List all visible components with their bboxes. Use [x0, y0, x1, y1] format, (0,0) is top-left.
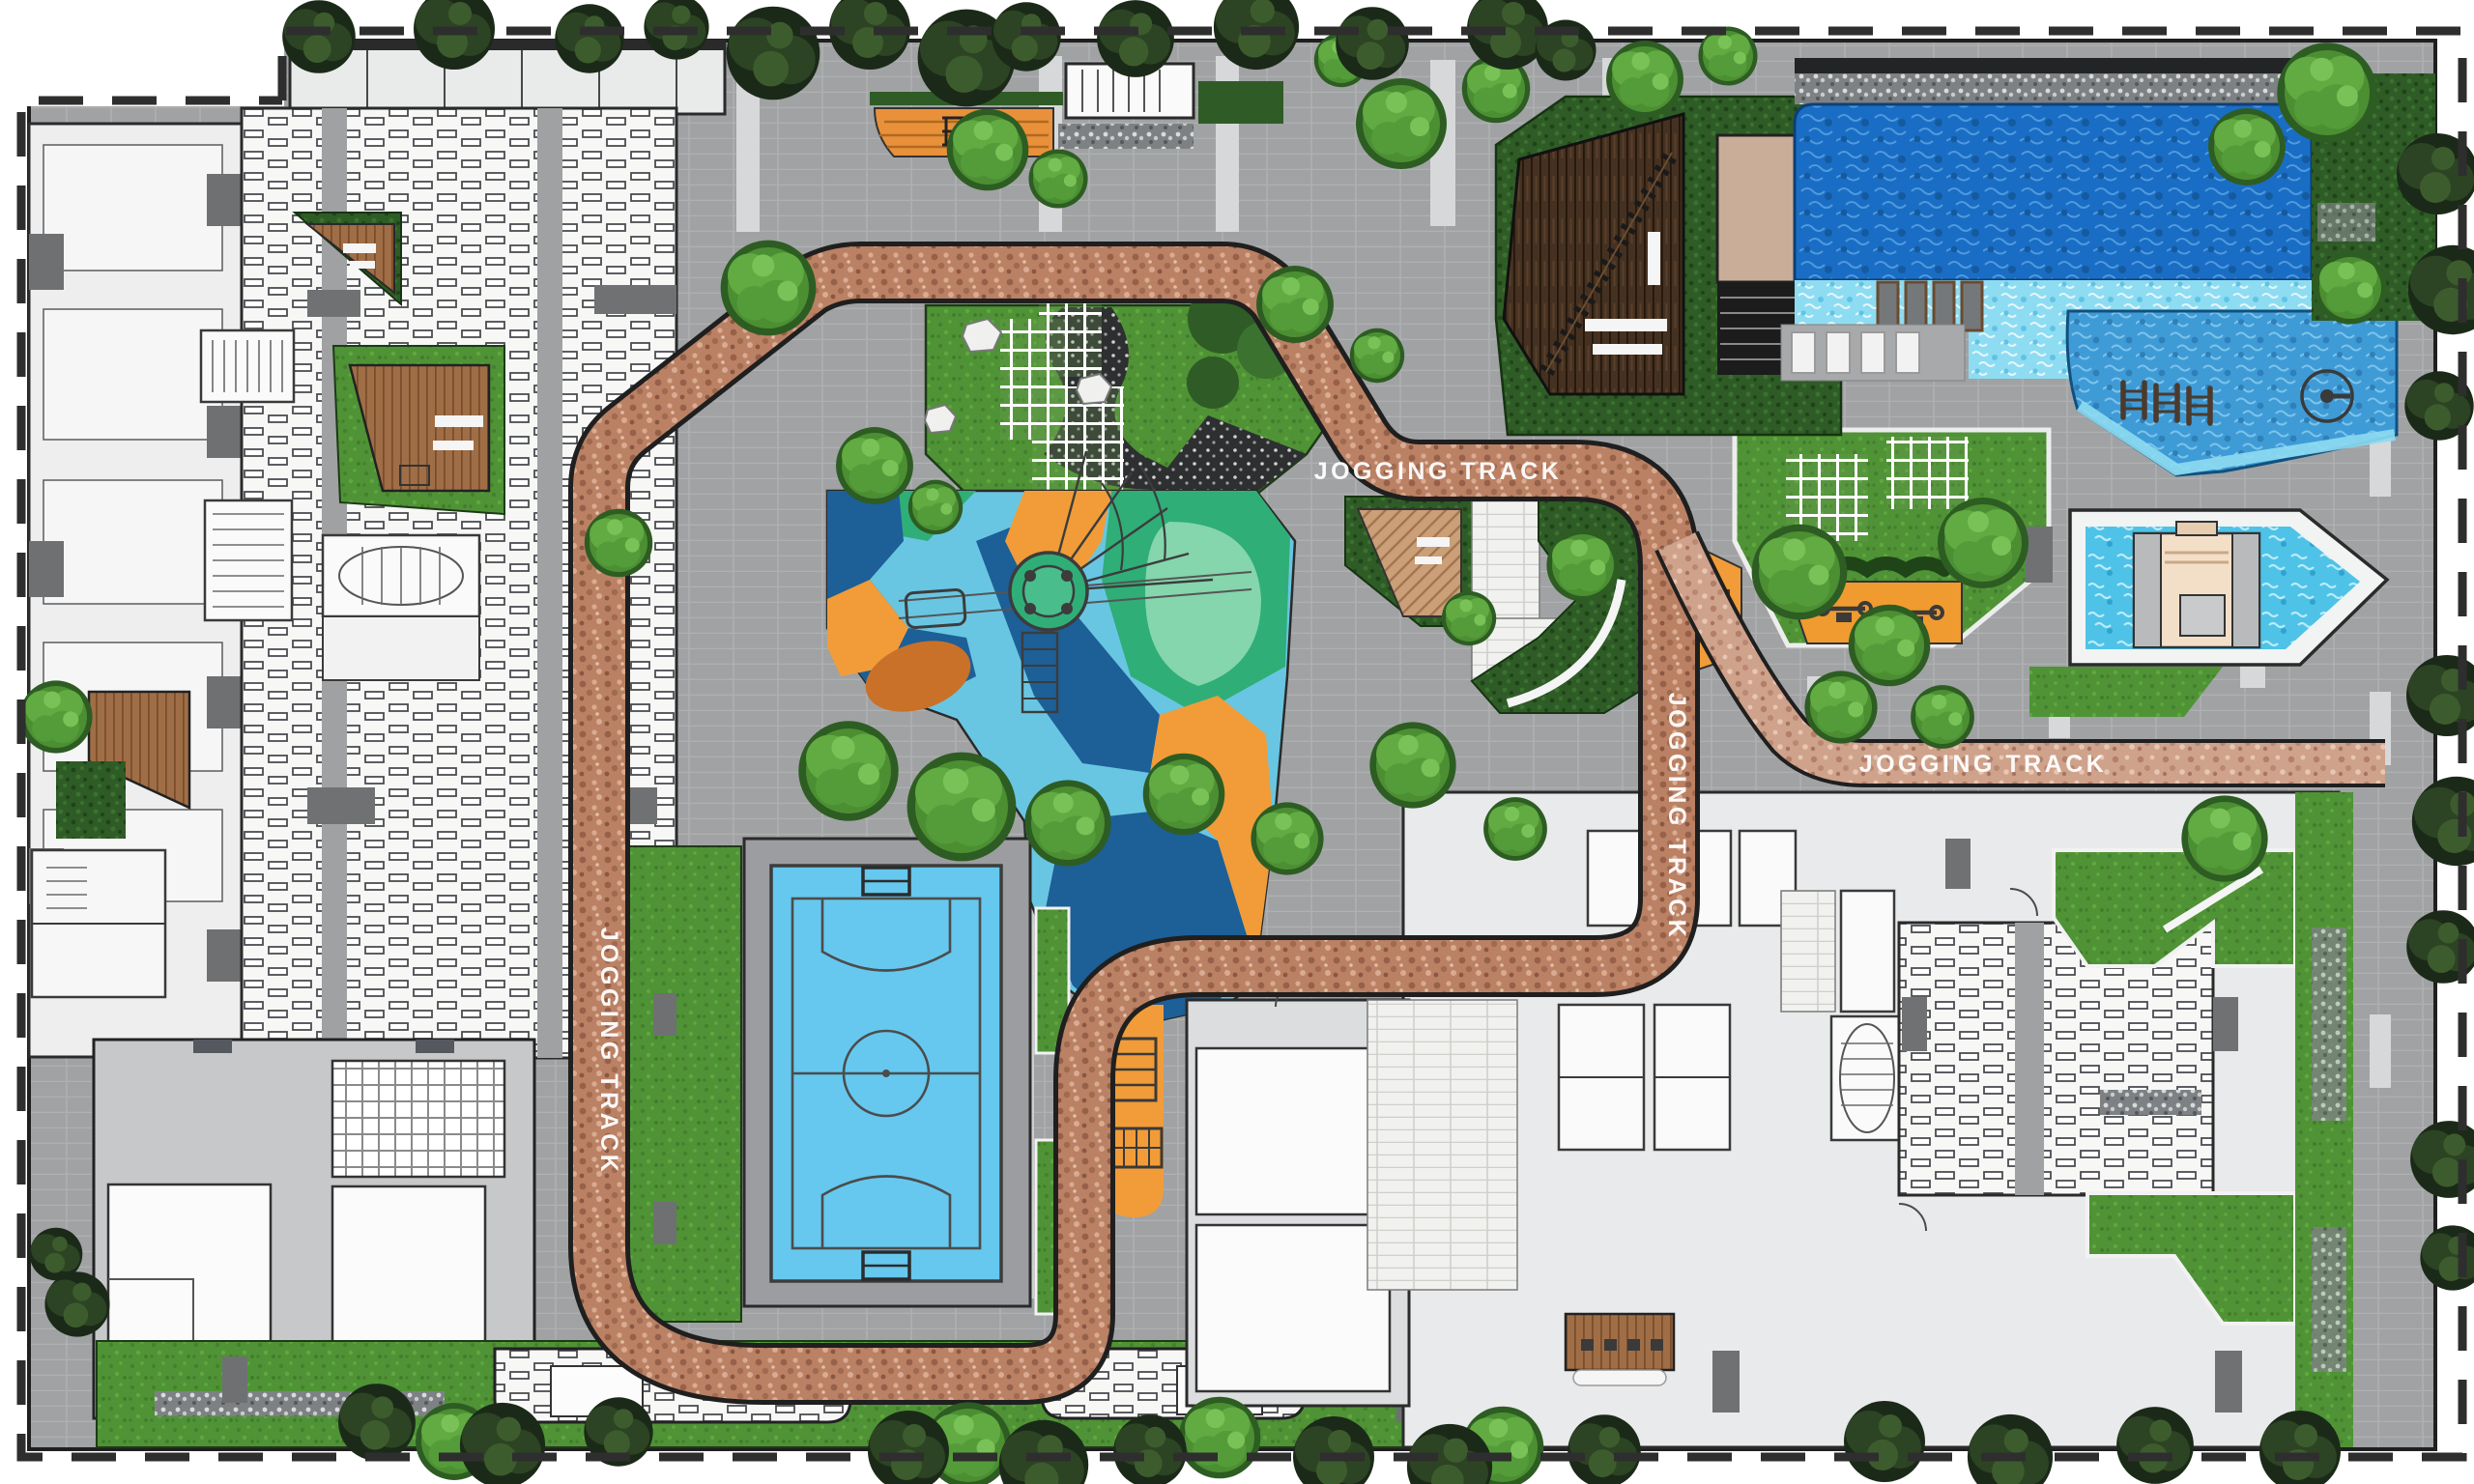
jogging-track-label-right: JOGGING TRACK [1663, 693, 1690, 941]
pool-terrace [1717, 135, 1799, 282]
jogging-track-label-center: JOGGING TRACK [1314, 458, 1563, 485]
site-plan: JOGGING TRACK JOGGING TRACK JOGGING TRAC… [0, 0, 2474, 1484]
timber-deck-pavilion [1504, 114, 1683, 394]
jogging-track-label-left: JOGGING TRACK [595, 927, 622, 1176]
futsal-court [623, 839, 1073, 1322]
stair-core [1831, 1016, 1903, 1140]
right-building-complex [1403, 792, 2353, 1447]
site-plan-page: JOGGING TRACK JOGGING TRACK JOGGING TRAC… [0, 0, 2474, 1484]
jogging-track-label-branch: JOGGING TRACK [1859, 751, 2108, 778]
